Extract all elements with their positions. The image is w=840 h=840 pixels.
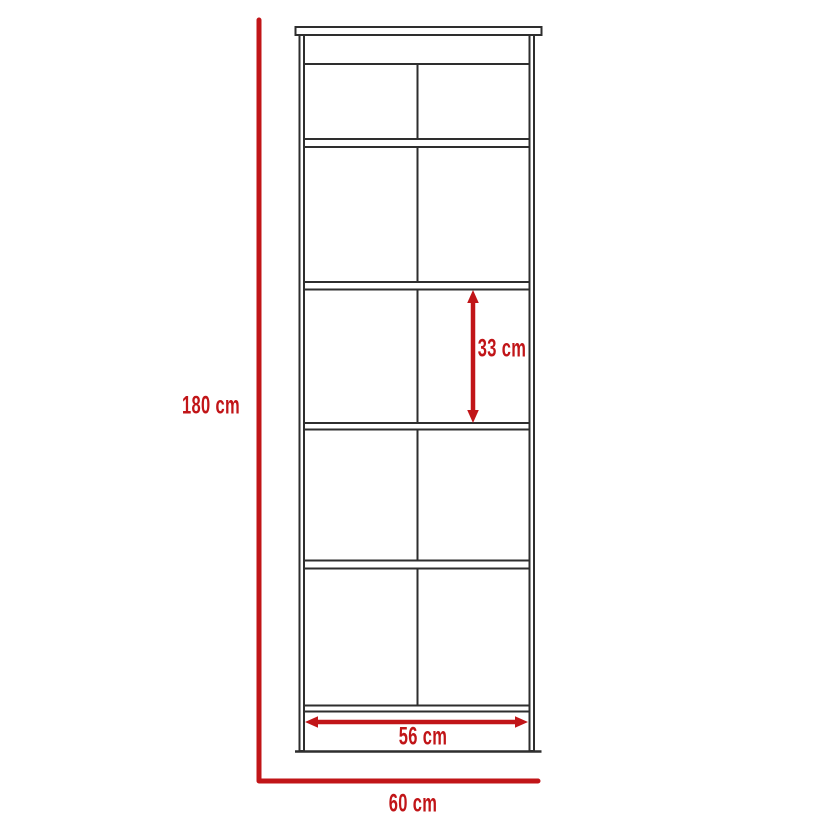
dimension-diagram: 180 cm 33 cm 56 cm 60 cm — [0, 0, 840, 840]
outer-width-label: 60 cm — [389, 792, 437, 817]
height-label: 180 cm — [182, 394, 240, 419]
shelf-spacing-label: 33 cm — [478, 337, 526, 362]
shelf-2 — [304, 282, 530, 290]
bookcase-outline — [295, 27, 542, 752]
arrow-down-head — [467, 410, 479, 423]
right-side-panel — [530, 35, 535, 751]
shelf-4 — [304, 561, 530, 569]
shelf-bottom — [304, 706, 530, 712]
arrow-right-head — [515, 716, 528, 728]
bookcase-drawing — [0, 0, 840, 840]
top-board — [296, 27, 542, 35]
shelf-1 — [304, 139, 530, 147]
shelf-3 — [304, 423, 530, 430]
inner-width-label: 56 cm — [399, 725, 447, 750]
dimension-lines — [259, 20, 538, 781]
arrow-left-head — [305, 716, 318, 728]
left-side-panel — [300, 35, 305, 751]
height-and-width-dimension-line — [259, 20, 538, 781]
arrow-up-head — [467, 290, 479, 303]
